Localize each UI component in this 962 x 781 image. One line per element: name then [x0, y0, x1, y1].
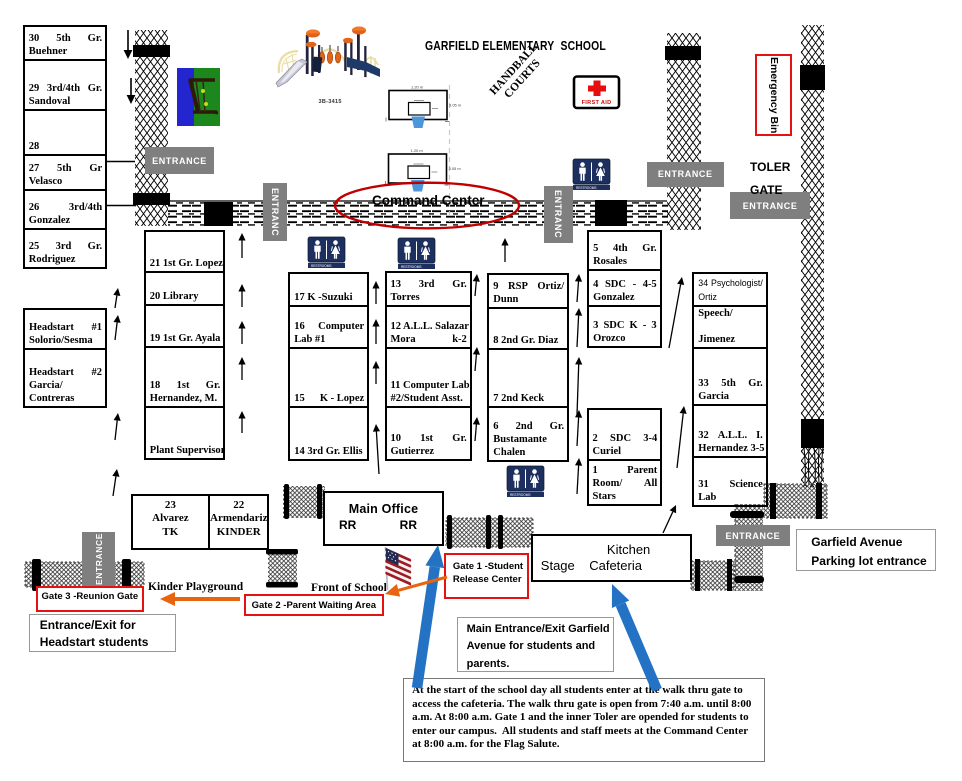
svg-text:1.20 m: 1.20 m — [411, 85, 424, 90]
svg-text:3.05 m: 3.05 m — [449, 166, 462, 171]
svg-text:RESTROOMS: RESTROOMS — [510, 493, 531, 497]
svg-text:1.20 m: 1.20 m — [411, 148, 424, 153]
svg-text:FIRST AID: FIRST AID — [582, 100, 612, 106]
svg-text:RESTROOMS: RESTROOMS — [576, 186, 597, 190]
svg-text:RESTROOMS: RESTROOMS — [311, 264, 332, 268]
svg-text:3B-3415: 3B-3415 — [319, 99, 342, 105]
svg-text:3.05 m: 3.05 m — [449, 103, 462, 108]
svg-text:RESTROOMS: RESTROOMS — [401, 265, 422, 269]
